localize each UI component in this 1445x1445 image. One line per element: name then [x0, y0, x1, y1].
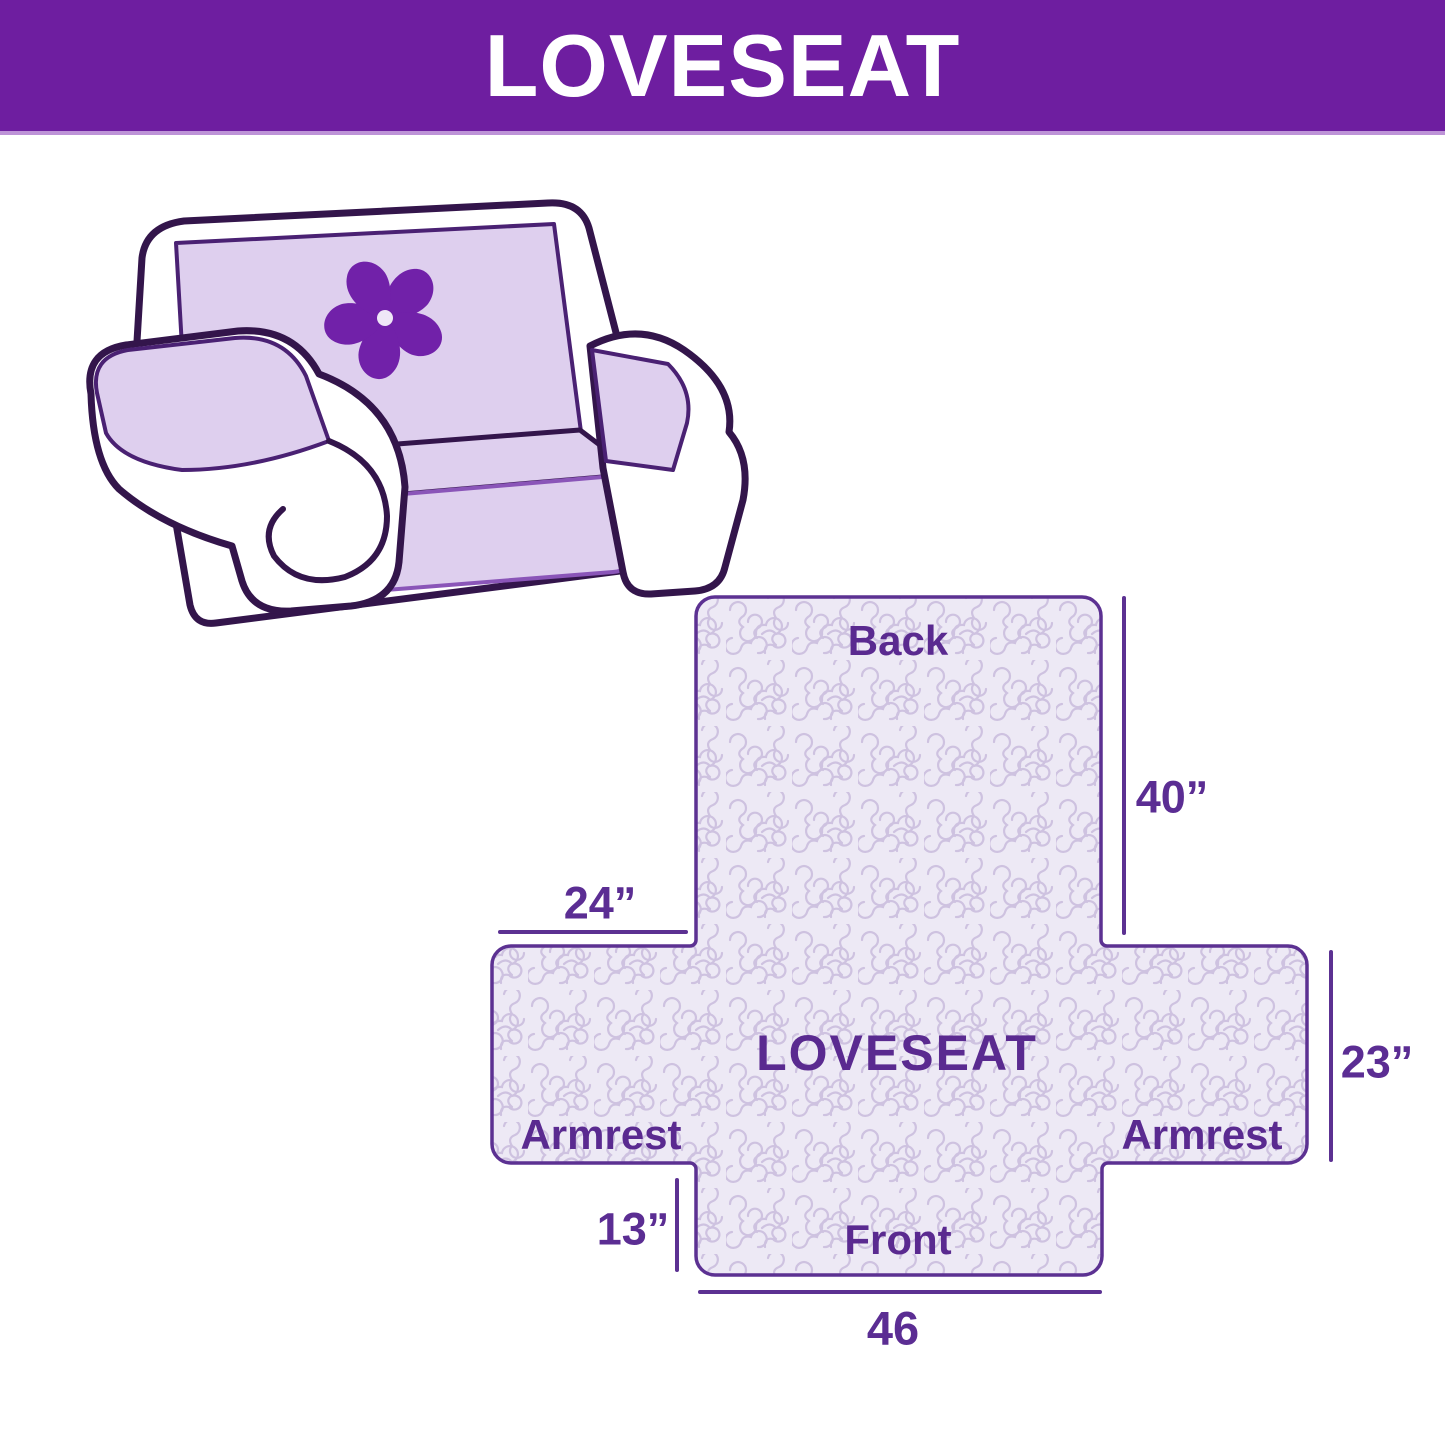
dimension-armrest-top-value: 24”	[564, 881, 637, 926]
diagram-front-label: Front	[844, 1219, 951, 1261]
dimension-front-width-value: 46	[867, 1305, 919, 1352]
diagram-center-label: LOVESEAT	[756, 1028, 1038, 1078]
sofa-cover-left-arm	[96, 338, 329, 470]
diagram-armrest-left-label: Armrest	[520, 1114, 681, 1156]
pinwheel-center-dot	[377, 310, 393, 326]
diagram-back-label: Back	[848, 620, 948, 662]
cover-flat-shape	[492, 597, 1307, 1275]
sofa-illustration	[90, 203, 745, 624]
dimension-armrest-side-value: 23”	[1341, 1040, 1414, 1085]
sofa-cover-right-arm	[592, 350, 688, 470]
dimension-front-height-value: 13”	[597, 1207, 670, 1252]
diagram-armrest-right-label: Armrest	[1121, 1114, 1282, 1156]
infographic-canvas: LOVESEAT	[0, 0, 1445, 1445]
cover-flat-diagram	[492, 597, 1307, 1275]
dimension-back-height-value: 40”	[1136, 775, 1209, 820]
scene-graphic	[0, 0, 1445, 1445]
